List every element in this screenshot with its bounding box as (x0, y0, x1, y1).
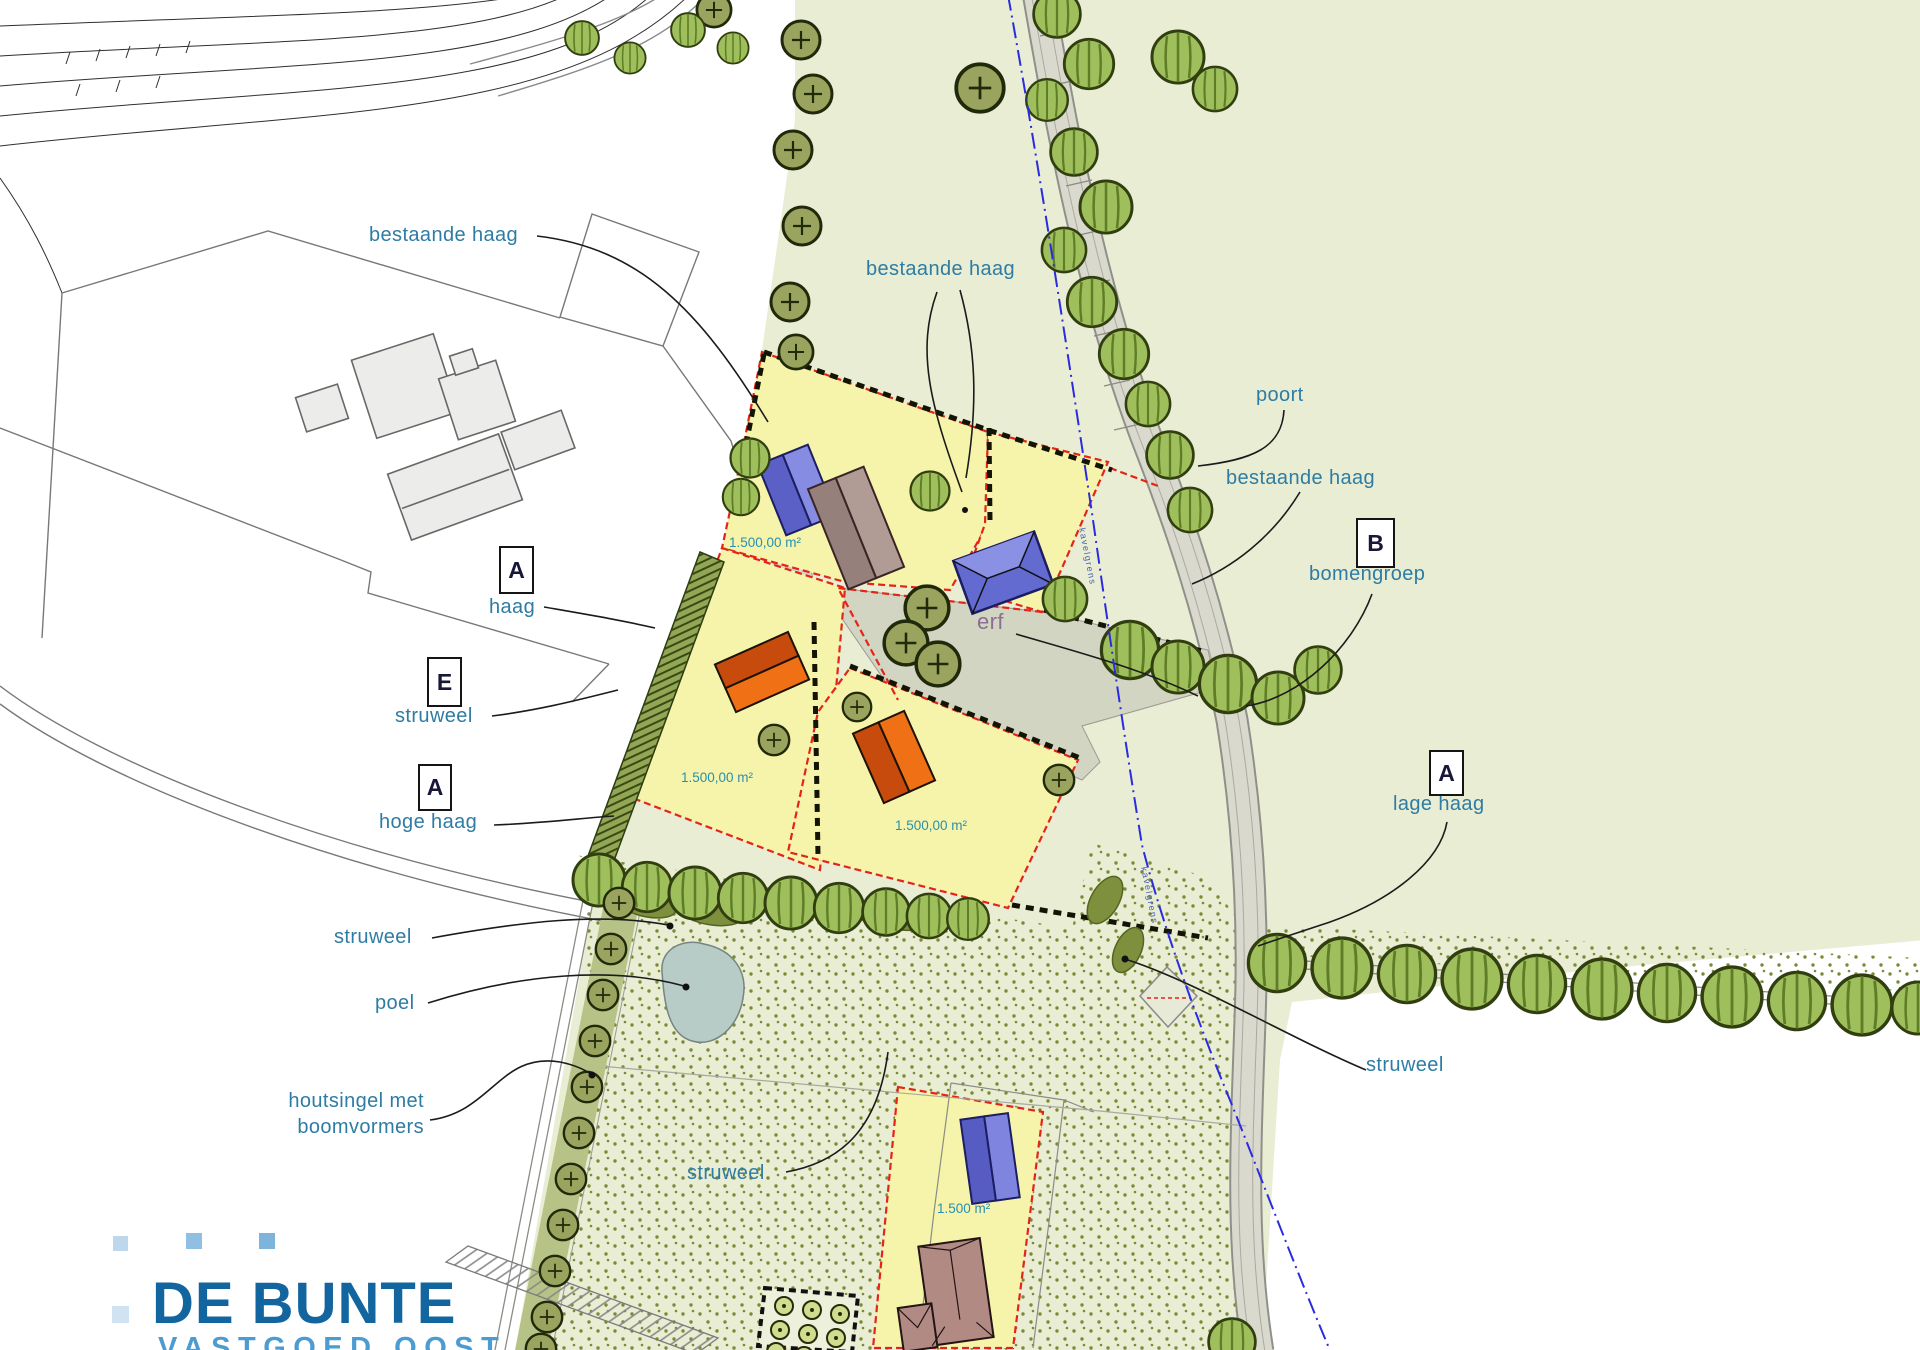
label-erf: erf (977, 610, 1004, 634)
logo-square (186, 1233, 202, 1249)
logo-square (259, 1233, 275, 1249)
label-haag: haag (489, 596, 535, 618)
label-bestaande-haag-e: bestaande haag (1226, 467, 1375, 489)
badge-struweel-e: E (427, 657, 462, 707)
area-label-plot-s: 1.500,00 m² (895, 819, 967, 834)
label-houtsingel: houtsingel met boomvormers (252, 1088, 424, 1140)
label-houtsingel-line2: boomvormers (252, 1114, 424, 1140)
badge-hoge-haag-a: A (418, 764, 452, 811)
label-struweel-se: struweel (1366, 1054, 1444, 1076)
area-label-plot-nw: 1.500,00 m² (729, 536, 801, 551)
badge-haag-a: A (499, 546, 534, 594)
badge-lage-haag-a: A (1429, 750, 1464, 796)
label-bestaande-haag-mid: bestaande haag (866, 258, 1015, 280)
area-label-plot-w: 1.500,00 m² (681, 771, 753, 786)
label-struweel-w: struweel (395, 705, 473, 727)
orchard (758, 1288, 858, 1350)
label-hoge-haag: hoge haag (379, 811, 477, 833)
area-label-plot-south: 1.500 m² (937, 1202, 990, 1217)
logo-title: DE BUNTE (152, 1270, 456, 1337)
label-lage-haag: lage haag (1393, 793, 1484, 815)
label-bestaande-haag-nw: bestaande haag (369, 224, 518, 246)
label-houtsingel-line1: houtsingel met (252, 1088, 424, 1114)
site-plan-drawing (0, 0, 1920, 1350)
badge-bomengroep-b: B (1356, 518, 1395, 568)
logo-square (112, 1306, 129, 1323)
site-plan-page: bestaande haag bestaande haag poort best… (0, 0, 1920, 1350)
existing-buildings (296, 334, 575, 540)
logo-square (113, 1236, 128, 1251)
label-poort: poort (1256, 384, 1304, 406)
label-struweel-s: struweel (687, 1162, 765, 1184)
logo-subtitle: VASTGOED OOST (158, 1332, 506, 1350)
label-struweel-sw: struweel (334, 926, 412, 948)
label-poel: poel (375, 992, 414, 1014)
